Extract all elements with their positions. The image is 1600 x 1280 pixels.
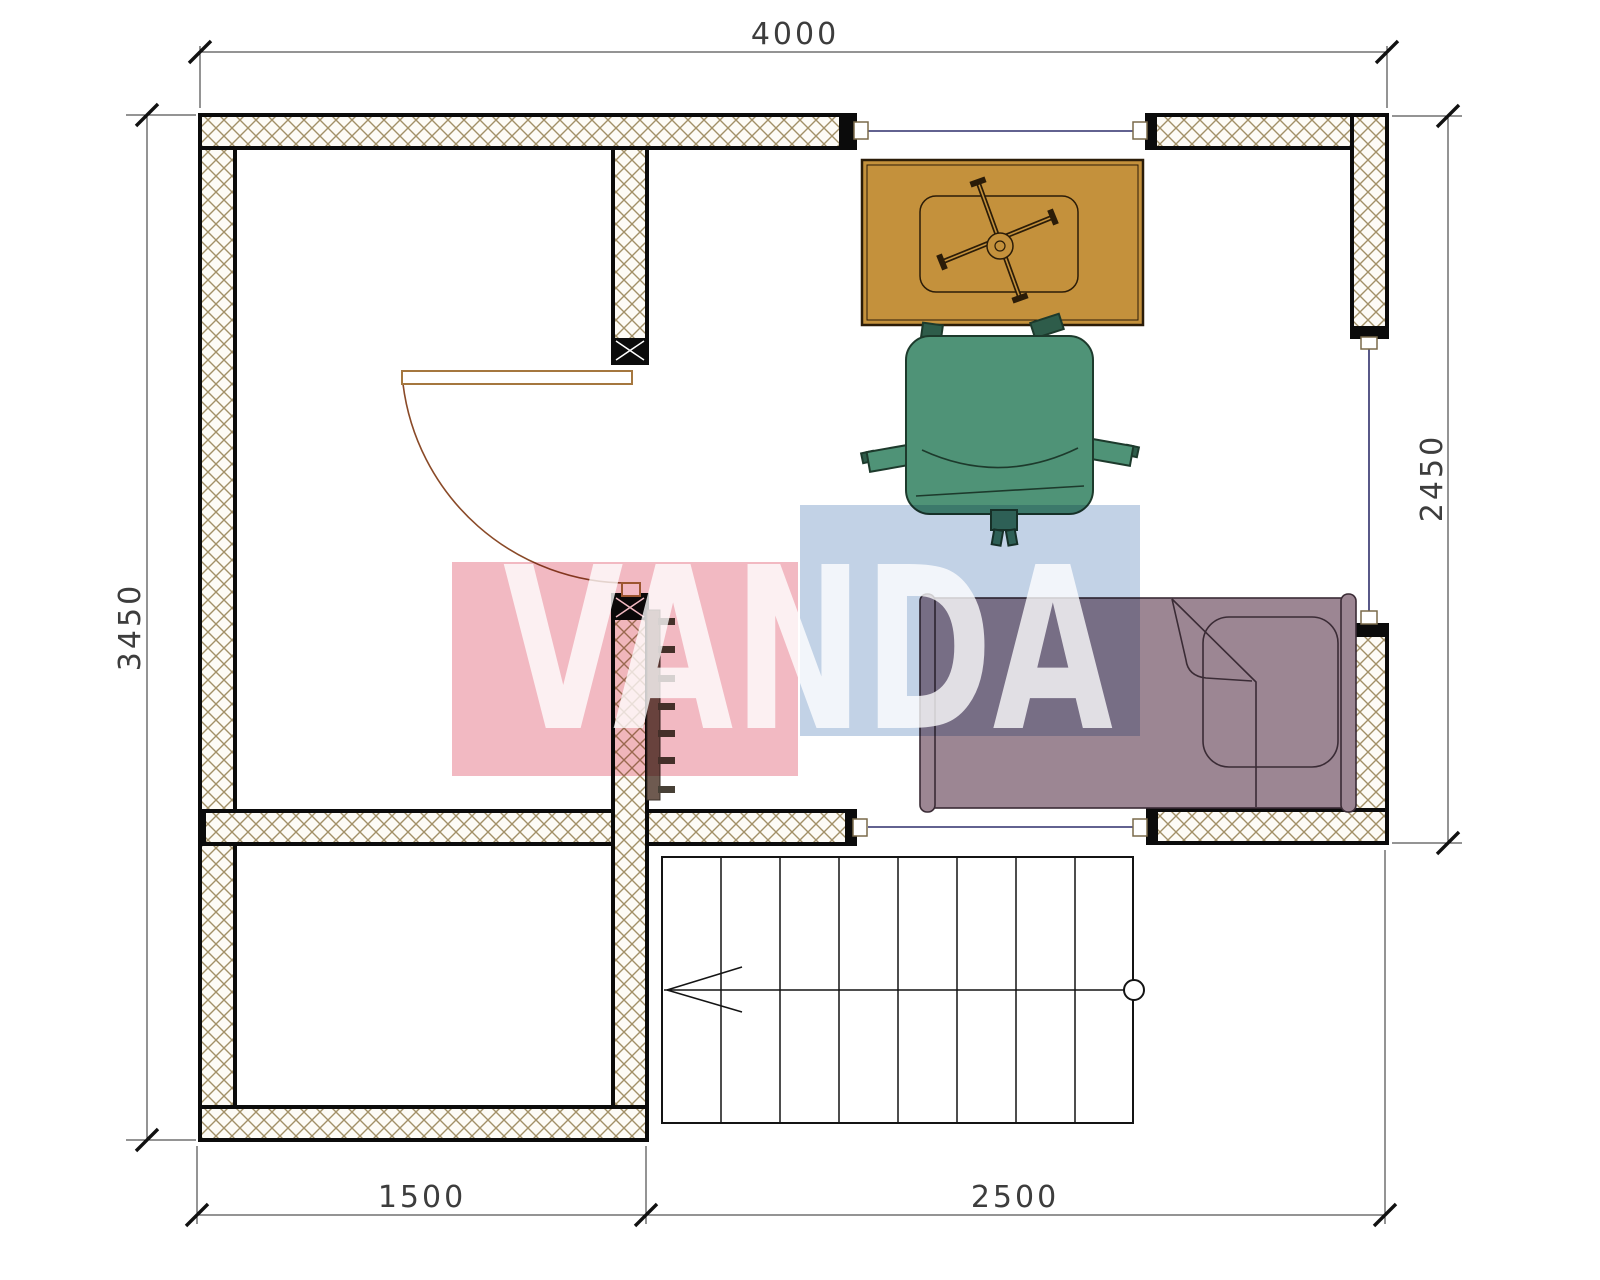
watermark: VANDA — [452, 505, 1140, 782]
bottom-right-wall — [1148, 810, 1387, 843]
dim-bottom-left-label: 1500 — [378, 1180, 466, 1215]
dim-right-label: 2450 — [1415, 434, 1450, 522]
window-top — [854, 122, 1147, 139]
window-frame-icon — [853, 819, 867, 836]
dim-top-label: 4000 — [751, 17, 839, 52]
left-wall — [200, 115, 235, 1140]
desk — [862, 160, 1143, 325]
window-frame-icon — [1133, 122, 1147, 139]
dim-bottom-right-label: 2500 — [971, 1180, 1059, 1215]
bottom-wall — [200, 1107, 647, 1140]
door-leaf — [402, 371, 632, 384]
window-frame-icon — [1361, 611, 1377, 624]
floor-plan-drawing: 4000 3450 2450 1500 2500 VANDA — [0, 0, 1600, 1280]
floor-plan-canvas: 4000 3450 2450 1500 2500 VANDA — [0, 0, 1600, 1280]
watermark-text: VANDA — [503, 520, 1113, 782]
mid-horizontal-wall — [204, 811, 855, 844]
bed-headboard — [1341, 594, 1356, 812]
stairs — [662, 857, 1144, 1123]
window-frame-icon — [1133, 819, 1147, 836]
top-wall-left — [200, 115, 855, 148]
window-frame-icon — [1361, 337, 1377, 349]
window-right — [1361, 337, 1377, 624]
right-wall-upper — [1352, 115, 1387, 337]
dim-left-label: 3450 — [113, 583, 148, 671]
mid-vertical-wall-upper — [613, 148, 647, 363]
window-frame-icon — [854, 122, 868, 139]
window-bottom — [853, 819, 1147, 836]
stair-start-marker — [1124, 980, 1144, 1000]
